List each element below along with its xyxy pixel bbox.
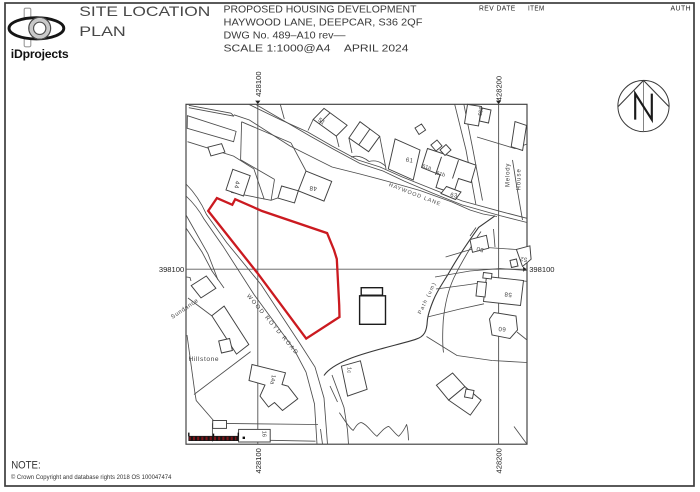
svg-text:PLAN: PLAN [79,24,126,39]
svg-text:Hillstone: Hillstone [189,356,220,363]
svg-text:SCALE 1:1000@A4 APRIL 2024: SCALE 1:1000@A4 APRIL 2024 [224,44,409,55]
svg-text:398100: 398100 [159,265,184,274]
svg-text:58: 58 [504,290,512,298]
svg-text:REV DATE: REV DATE [479,4,516,13]
svg-text:DWG No. 489–A10 rev––: DWG No. 489–A10 rev–– [224,31,346,42]
svg-text:428200: 428200 [495,76,504,101]
svg-text:48: 48 [309,184,318,192]
svg-text:1c: 1c [346,367,352,373]
svg-text:Melody: Melody [506,163,512,187]
svg-text:PROPOSED HOUSING DEVELOPMENT: PROPOSED HOUSING DEVELOPMENT [224,5,417,16]
svg-text:398100: 398100 [529,265,554,274]
svg-text:61: 61 [405,157,414,165]
svg-text:ITEM: ITEM [528,4,545,13]
svg-text:428100: 428100 [254,71,263,96]
svg-text:HAYWOOD LANE, DEEPCAR, S36 2QF: HAYWOOD LANE, DEEPCAR, S36 2QF [224,18,423,29]
svg-text:60: 60 [498,325,506,333]
svg-text:© Crown Copyright and database: © Crown Copyright and database rights 20… [11,473,172,481]
svg-text:iDprojects: iDprojects [11,47,69,61]
svg-text:House: House [517,168,523,190]
svg-text:AUTH: AUTH [671,4,692,13]
svg-text:16: 16 [261,431,267,437]
svg-text:SITE LOCATION: SITE LOCATION [79,4,210,19]
svg-text:NOTE:: NOTE: [11,460,41,472]
svg-text:428100: 428100 [254,448,263,473]
svg-text:428200: 428200 [495,448,504,473]
